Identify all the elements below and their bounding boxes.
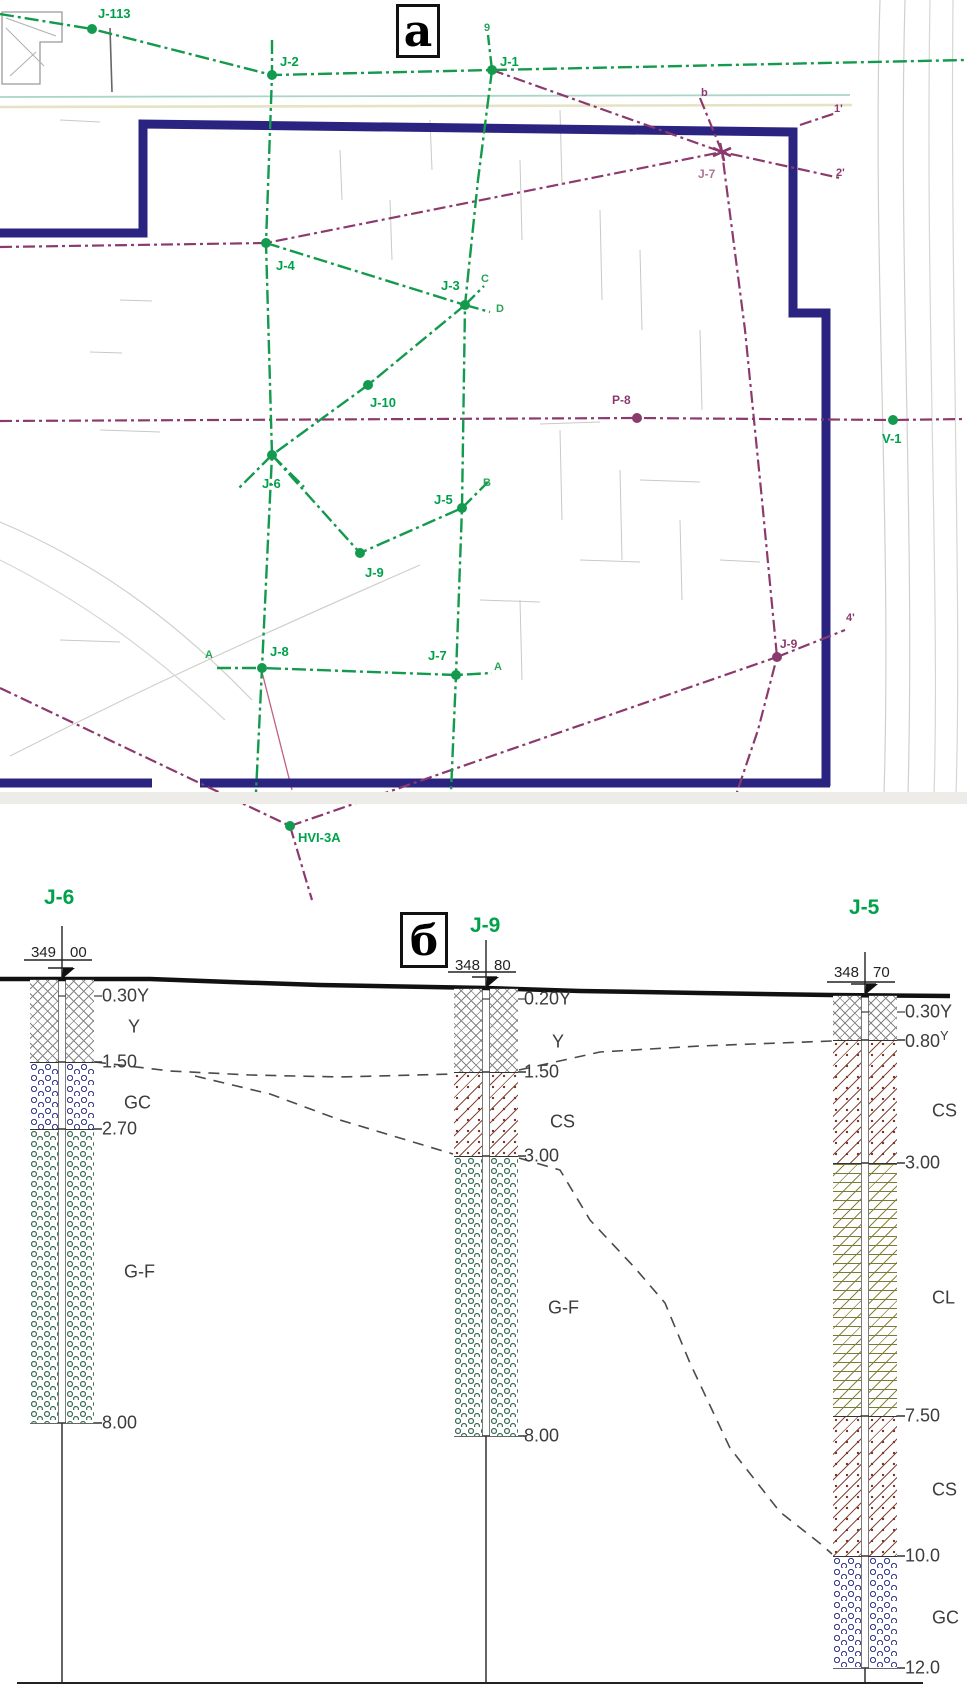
depth-label: 3.00 [524,1146,559,1167]
soil-code-label: CS [932,1101,957,1122]
survey-node [87,24,97,34]
survey-node [363,380,373,390]
elevation-value-frac: 70 [873,964,890,981]
axis-letter-label: 9 [484,22,490,34]
soil-code-label: GC [124,1093,151,1114]
soil-code-label: CL [932,1288,955,1309]
panel-b-label: б [400,912,448,968]
soil-layer-GC [30,1062,58,1129]
soil-layer-Y [30,979,58,1062]
depth-label-suffix: Y [940,1028,949,1043]
traverse-node-label: J-9 [780,637,798,651]
panel-a-letter: a [404,6,433,57]
soil-layer-CS [454,1072,482,1156]
survey-node-label: J-2 [280,54,299,69]
traverse-node-label: P-8 [612,393,631,407]
survey-line [272,305,465,455]
survey-node-label: J-113 [98,6,131,21]
soil-layer-CS [869,1040,897,1163]
topo-line [903,0,909,795]
borehole-name: J-5 [849,896,879,920]
depth-label: 3.00 [905,1153,940,1174]
elevation-value-main: 348 [834,964,859,981]
figure-canvas: P-8J-9J-7J-113J-2J-1J-4J-3J-10J-6J-5J-9J… [0,0,967,1701]
survey-node [257,663,267,673]
panel-separator [0,792,967,804]
borehole-name: J-6 [44,886,74,910]
soil-layer-GF [454,1156,482,1436]
survey-node-label: J-6 [262,476,281,491]
topo-line [6,18,56,76]
survey-line [488,35,492,70]
depth-label: 12.0 [905,1658,940,1679]
soil-code-label: G-F [548,1298,579,1319]
traverse-line [492,70,840,178]
soil-layer-CS [833,1040,861,1163]
survey-node [451,670,461,680]
traverse-line [800,113,836,125]
axis-letter-label: A [494,661,502,673]
traverse-line [0,418,966,421]
survey-node [888,415,898,425]
topo-line [0,522,252,700]
survey-node [267,70,277,80]
survey-node-label: J-3 [441,278,460,293]
layer-correlation-line [519,1041,832,1070]
soil-layer-Y [66,979,94,1062]
topo-line [0,95,850,97]
soil-layer-Y [490,988,518,1072]
survey-line [0,14,966,75]
soil-code-label: CS [550,1112,575,1133]
topo-line [262,672,292,790]
soil-layer-CL [833,1163,861,1416]
survey-node-label: J-5 [434,492,453,507]
traverse-line [700,98,777,795]
depth-label: 10.0 [905,1546,940,1567]
depth-label: 1.50 [102,1052,137,1073]
axis-letter-label: B [483,477,491,489]
axis-letter-label: C [481,273,489,285]
topo-line [10,565,420,756]
topo-line [110,28,112,92]
soil-layer-CS [490,1072,518,1156]
elevation-value-frac: 00 [70,944,87,961]
depth-label: 0.20Y [524,989,571,1010]
survey-node-label: HVI-3A [298,830,341,845]
traverse-node-label: J-7 [698,167,716,181]
layer-correlation-line [519,1158,832,1554]
soil-code-label: Y [128,1017,140,1038]
depth-label: 7.50 [905,1406,940,1427]
panel-a-label: a [396,4,440,58]
topo-line [953,0,958,795]
layer-correlation-line [95,1062,453,1077]
soil-layer-GF [66,1129,94,1423]
topo-line [878,0,886,795]
depth-label: 1.50 [524,1062,559,1083]
soil-code-label: Y [552,1032,564,1053]
survey-node-label: J-8 [270,644,289,659]
axis-letter-label: 2' [836,167,845,179]
elevation-value-main: 348 [455,957,480,974]
soil-layer-GC [869,1556,897,1668]
topo-line [929,0,935,795]
axis-letter-label: A [205,649,213,661]
soil-code-label: G-F [124,1262,155,1283]
axis-letter-label: D [496,303,504,315]
survey-node-label: J-10 [370,395,396,410]
soil-layer-GC [833,1556,861,1668]
axis-letter-label: 4' [846,612,855,624]
topo-line [0,105,852,107]
layer-correlation-line [195,1076,453,1154]
soil-layer-CS [869,1416,897,1556]
depth-label: 2.70 [102,1119,137,1140]
soil-layer-GC [66,1062,94,1129]
topo-line [60,120,760,642]
soil-code-label: GC [932,1608,959,1629]
survey-line [451,70,492,792]
survey-node-label: J-9 [365,565,384,580]
depth-label: 0.30Y [102,986,149,1007]
survey-line [266,243,465,305]
traverse-node [772,652,782,662]
survey-node [460,300,470,310]
depth-label: 8.00 [524,1426,559,1447]
soil-layer-GF [30,1129,58,1423]
geotechnical-figure: P-8J-9J-7J-113J-2J-1J-4J-3J-10J-6J-5J-9J… [0,0,967,1701]
axis-letter-label: b [701,87,708,99]
elevation-value-main: 349 [31,944,56,961]
survey-node [261,238,271,248]
depth-label: 8.00 [102,1413,137,1434]
soil-layer-GF [490,1156,518,1436]
panel-b-letter: б [410,916,438,965]
topo-line [0,560,225,720]
borehole-name: J-9 [470,914,500,938]
elevation-value-frac: 80 [494,957,511,974]
survey-node [457,503,467,513]
soil-code-label: CS [932,1480,957,1501]
survey-node [285,821,295,831]
survey-node [487,65,497,75]
soil-layer-CL [869,1163,897,1416]
survey-node-label: J-7 [428,648,447,663]
depth-label: 0.80Y [905,1028,949,1052]
soil-layer-Y [869,995,897,1040]
axis-letter-label: 1' [834,103,843,115]
building-outline [0,124,826,786]
survey-node-label: V-1 [882,431,902,446]
survey-node [267,450,277,460]
soil-layer-Y [454,988,482,1072]
soil-layer-Y [833,995,861,1040]
depth-label: 0.30Y [905,1002,952,1023]
survey-node-label: J-4 [276,258,296,273]
survey-node [355,548,365,558]
survey-node-label: J-1 [500,54,519,69]
soil-layer-CS [833,1416,861,1556]
traverse-node [632,413,642,423]
